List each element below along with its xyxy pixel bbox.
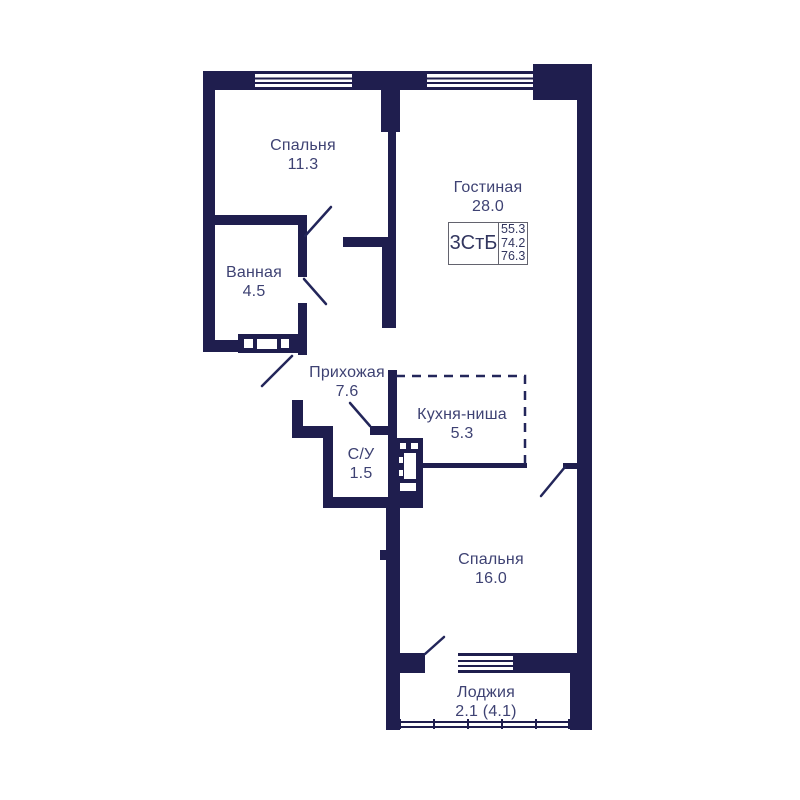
room-label-bedroom-2: Спальня 16.0 xyxy=(458,550,524,588)
apartment-areas: 55.3 74.2 76.3 xyxy=(499,223,527,264)
window-bedroom-1 xyxy=(255,74,352,87)
room-label-kitchen: Кухня-ниша 5.3 xyxy=(417,405,507,443)
loggia-door-opening xyxy=(425,653,458,673)
room-name: Спальня xyxy=(458,550,524,569)
room-name: Кухня-ниша xyxy=(417,405,507,424)
plumbing-shaft-hatch xyxy=(397,438,423,497)
room-area: 4.5 xyxy=(226,282,282,301)
room-area: 5.3 xyxy=(417,424,507,443)
room-label-hallway: Прихожая 7.6 xyxy=(309,363,385,401)
area-value-living: 55.3 xyxy=(501,223,527,237)
door-wc xyxy=(350,403,370,426)
room-label-living: Гостиная 28.0 xyxy=(454,178,523,216)
door-loggia xyxy=(425,637,444,654)
door-bedroom-1 xyxy=(305,207,331,236)
room-name: Спальня xyxy=(270,136,336,155)
apartment-type-label: 3СтБ xyxy=(449,223,499,264)
room-name: С/У xyxy=(348,445,375,464)
door-bedroom-2 xyxy=(541,467,565,496)
room-area: 2.1 (4.1) xyxy=(455,702,516,721)
floor-plan-drawing xyxy=(0,0,800,800)
walls xyxy=(203,64,592,730)
apartment-info-box: 3СтБ 55.3 74.2 76.3 xyxy=(448,222,528,265)
room-area: 16.0 xyxy=(458,569,524,588)
room-area: 7.6 xyxy=(309,382,385,401)
room-label-bathroom: Ванная 4.5 xyxy=(226,263,282,301)
room-area: 11.3 xyxy=(270,155,336,174)
window-bedroom-2 xyxy=(458,656,513,670)
floor-plan-canvas: Спальня 11.3 Гостиная 28.0 Ванная 4.5 Пр… xyxy=(0,0,800,800)
room-area: 28.0 xyxy=(454,197,523,216)
room-name: Гостиная xyxy=(454,178,523,197)
room-name: Лоджия xyxy=(455,683,516,702)
room-area: 1.5 xyxy=(348,464,375,483)
room-label-wc: С/У 1.5 xyxy=(348,445,375,483)
bathroom-shaft-hatch xyxy=(238,334,298,353)
door-entry xyxy=(262,356,292,386)
area-value-overall: 76.3 xyxy=(501,250,527,264)
room-name: Прихожая xyxy=(309,363,385,382)
area-value-total: 74.2 xyxy=(501,237,527,251)
window-living xyxy=(427,74,533,87)
room-name: Ванная xyxy=(226,263,282,282)
room-label-loggia: Лоджия 2.1 (4.1) xyxy=(455,683,516,721)
room-label-bedroom-1: Спальня 11.3 xyxy=(270,136,336,174)
